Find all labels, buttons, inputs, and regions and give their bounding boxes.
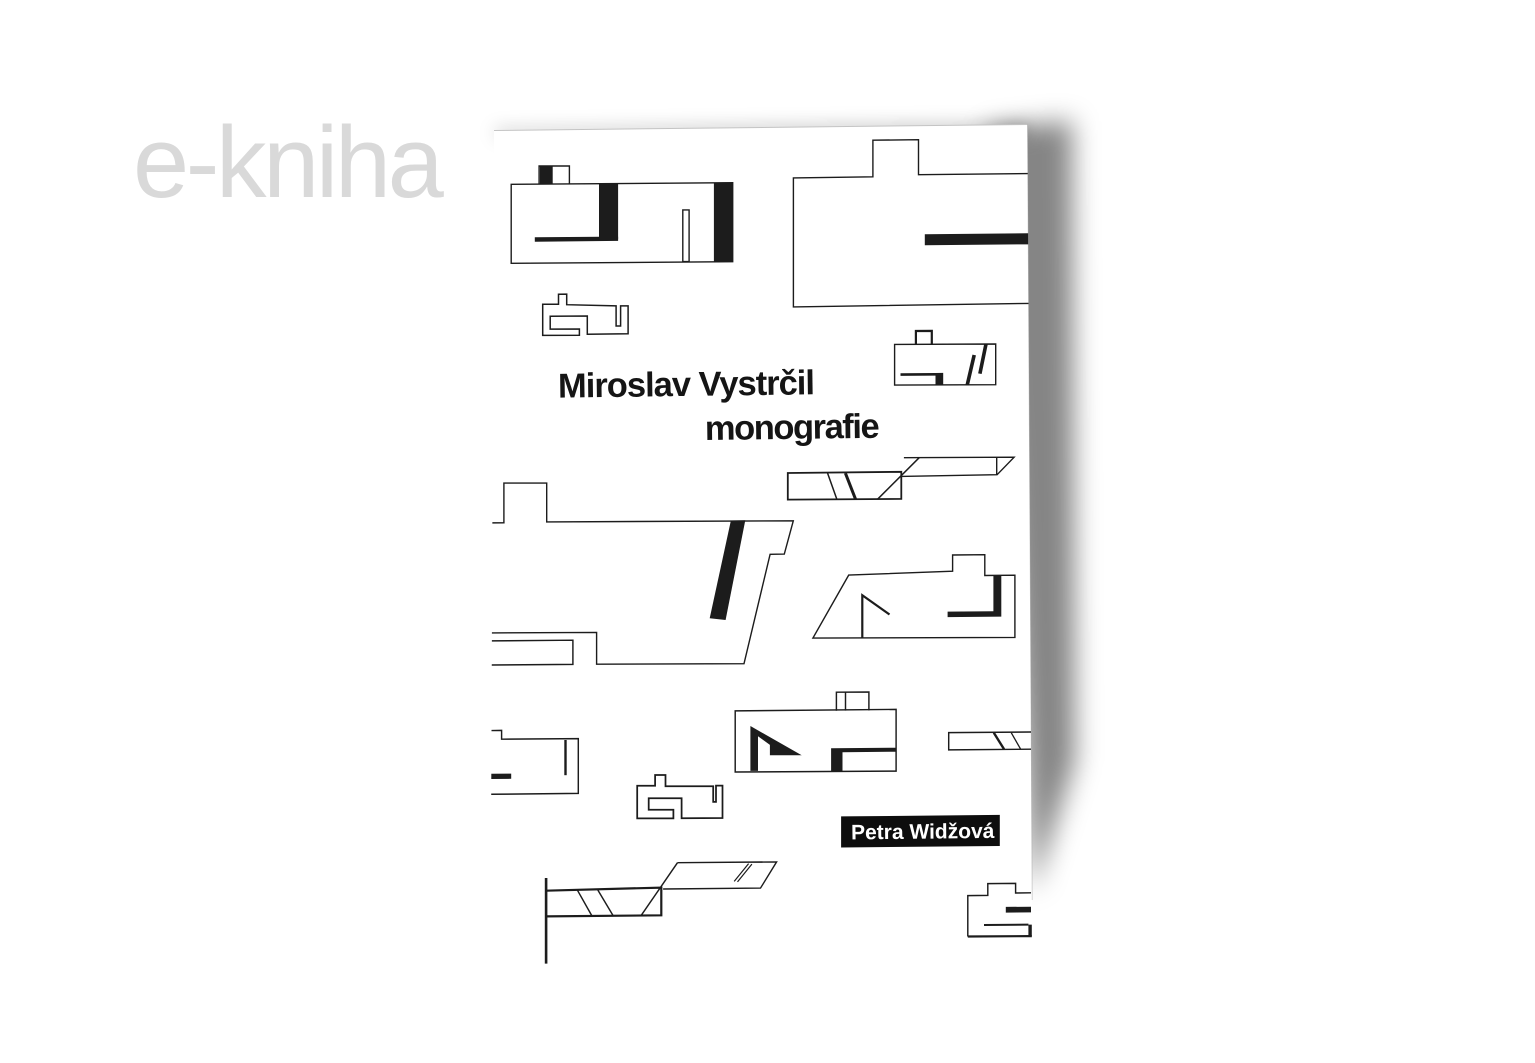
svg-text:Petra Widžová: Petra Widžová: [851, 820, 995, 845]
svg-text:Miroslav Vystrčil: Miroslav Vystrčil: [558, 364, 814, 405]
svg-text:e-kniha: e-kniha: [133, 107, 445, 219]
svg-text:monografie: monografie: [705, 408, 880, 448]
